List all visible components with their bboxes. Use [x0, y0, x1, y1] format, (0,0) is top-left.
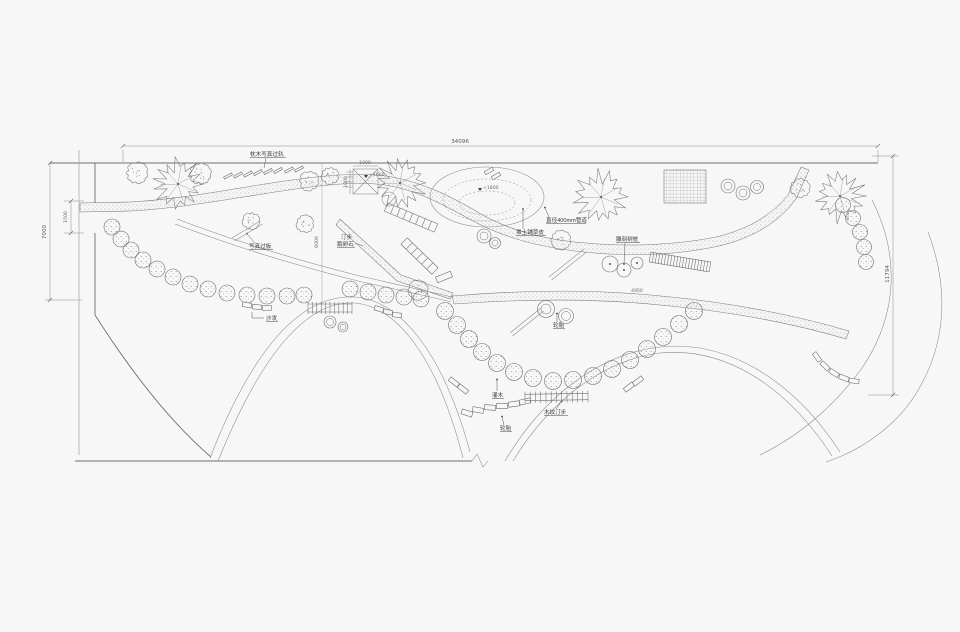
ladder-structure — [525, 391, 588, 403]
plank-symbol — [812, 352, 821, 363]
carved-stump-symbols — [602, 256, 643, 277]
boulder-symbol — [360, 284, 376, 300]
plank-symbol — [632, 376, 643, 386]
lawn-edge-diagonal-b — [175, 224, 451, 302]
leader-dot — [501, 416, 503, 418]
label-pipe: 直径400mm管道 — [546, 216, 587, 224]
tire-symbol — [736, 186, 750, 200]
plank-symbol — [254, 169, 263, 175]
plank-symbol — [252, 304, 261, 309]
break-mark — [472, 454, 488, 467]
boulder-symbol — [449, 317, 466, 334]
plank-symbol — [392, 312, 401, 317]
site-plan-canvas: +1800 1000 1000 +1660 34096 7000 1500 8 — [0, 0, 960, 632]
label-stepping-1: 汀步 — [341, 234, 353, 241]
boulder-symbol — [639, 341, 656, 358]
label-tires-lower: 轮胎 — [500, 424, 512, 432]
landscape-plan-sheet: +1800 1000 1000 +1660 34096 7000 1500 8 — [0, 0, 960, 632]
ladder-structure — [649, 252, 711, 272]
dim-left-opening: 1500 — [63, 211, 69, 223]
leader-dot — [561, 401, 563, 403]
lawn-arc-left-a — [210, 297, 470, 458]
leader-dot — [522, 208, 524, 210]
boulder-symbol — [396, 289, 412, 305]
plank-symbol — [849, 378, 860, 384]
leader-dot — [496, 379, 498, 381]
label-carved-stumps: 雕刻树桩 — [616, 235, 639, 243]
note-tires-upper: 轮胎 — [553, 313, 565, 329]
leader-dot — [623, 263, 625, 265]
boulder-symbol — [200, 281, 216, 297]
lawn-arc-right-a — [505, 346, 840, 461]
boulder-symbol — [525, 370, 542, 387]
boulder-symbol — [279, 288, 295, 304]
boulder-symbol — [545, 373, 562, 390]
boulder-symbol — [342, 281, 358, 297]
ladder-structure — [401, 238, 438, 274]
plank-symbol — [472, 407, 484, 414]
plank-symbol — [491, 172, 501, 180]
leader-line — [247, 234, 255, 243]
mound-spot-level: +1800 — [483, 185, 499, 191]
leader-line — [502, 417, 504, 425]
label-photo-board: 写真过板 — [249, 242, 272, 250]
plank-symbol — [264, 168, 273, 174]
leader-line — [545, 208, 549, 217]
stump-symbol — [617, 263, 631, 277]
plank-symbol — [461, 409, 473, 417]
note-wood-steps: 木纹汀步 — [544, 401, 568, 416]
boulder-symbol — [239, 287, 255, 303]
boulder-symbol — [182, 276, 198, 292]
plank-symbol — [829, 368, 840, 377]
tree-symbol — [573, 168, 628, 220]
boulder-symbol — [378, 287, 394, 303]
mound-contour-2 — [459, 191, 515, 215]
label-wood-steps: 木纹汀步 — [544, 408, 567, 416]
plank-symbol — [244, 171, 253, 177]
shrub-symbol — [296, 215, 314, 233]
tire-symbol — [751, 181, 764, 194]
tire-symbol — [477, 229, 491, 243]
label-earth-mound: 堆土铺草皮 — [516, 228, 544, 236]
boulder-symbol — [859, 255, 874, 270]
label-sand-seat: 沙发 — [266, 314, 278, 322]
slide-board-lines-2 — [510, 308, 544, 336]
dim-left-height: 7000 — [42, 224, 48, 239]
plank-symbol — [457, 384, 468, 394]
label-tires-upper: 轮胎 — [553, 321, 565, 329]
boulder-symbol — [853, 225, 868, 240]
boulder-symbol — [836, 198, 851, 213]
boulder-symbol — [655, 329, 672, 346]
note-earth-mound: 堆土铺草皮 — [516, 208, 546, 236]
boulder-symbol — [585, 368, 602, 385]
boulder-symbol — [219, 285, 235, 301]
note-photo-board: 写真过板 — [246, 233, 273, 250]
boulder-symbol — [686, 303, 703, 320]
boulder-symbol — [671, 316, 688, 333]
boulder-symbol — [565, 372, 582, 389]
shrub-symbol — [126, 162, 147, 184]
tire-symbol — [559, 309, 574, 324]
tire-symbol — [721, 179, 735, 193]
platform-width-dim: 1000 — [359, 160, 371, 166]
leader-dot — [556, 313, 558, 315]
plank-symbol — [484, 405, 495, 411]
label-shrubs: 灌木 — [492, 391, 504, 399]
plank-symbol — [820, 361, 830, 371]
plank-symbol — [263, 306, 272, 311]
dim-path-segment: 4950 — [631, 288, 643, 294]
plank-symbol — [234, 172, 243, 178]
plank-symbol — [448, 377, 459, 387]
boundary-left-curve — [95, 315, 211, 457]
boulder-symbol — [461, 331, 478, 348]
plank-symbol — [496, 403, 507, 408]
boulder-symbol — [135, 252, 151, 268]
plank-symbol — [224, 173, 233, 179]
plank-symbol — [242, 302, 252, 308]
boulder-symbol — [506, 364, 523, 381]
platform-depth-dim: 1000 — [343, 176, 349, 188]
spot-level-marker — [478, 188, 482, 191]
leader-line — [252, 312, 264, 318]
tire-symbol — [324, 316, 336, 328]
stump-symbol — [631, 257, 643, 269]
boulder-symbol — [259, 288, 275, 304]
climb-net-grid — [664, 170, 706, 203]
plank-symbol — [383, 309, 393, 315]
boulder-symbol — [846, 211, 861, 226]
stump-symbol — [602, 256, 618, 272]
ladder-structure — [308, 302, 352, 314]
dim-site-width: 34096 — [451, 139, 469, 145]
lawn-arc-left-b — [218, 303, 463, 461]
tire-symbol — [338, 322, 348, 332]
photo-board-lines — [232, 221, 263, 241]
plank-symbol — [484, 167, 494, 175]
boulder-symbol — [165, 269, 181, 285]
dim-center-depth: 8000 — [314, 236, 320, 248]
plank-symbol — [435, 271, 452, 283]
plank-symbol — [285, 167, 294, 173]
boulder-symbol — [604, 361, 621, 378]
note-shrubs: 灌木 — [492, 379, 504, 399]
plank-symbol — [839, 374, 850, 382]
dim-right-height: 11794 — [885, 265, 891, 283]
plank-symbol — [374, 305, 384, 312]
leader-dot — [544, 207, 546, 209]
slide-board-lines — [549, 249, 587, 280]
boulder-symbol — [489, 355, 506, 372]
boulder-symbol — [149, 261, 165, 277]
note-tires-lower: 轮胎 — [500, 416, 512, 432]
lawn-arc-right-b — [513, 352, 832, 461]
boulder-symbol — [437, 303, 454, 320]
shrub-symbol — [242, 213, 260, 230]
note-top-walkway: 枕木写真过轨 — [250, 150, 286, 168]
boulder-symbol — [413, 291, 429, 307]
tire-symbol — [490, 238, 501, 249]
plank-symbol — [274, 167, 283, 173]
ladder-structure — [384, 203, 437, 232]
plank-symbol — [295, 166, 304, 172]
platform-spot-level: +1660 — [369, 172, 385, 178]
boundary-right-curve-2 — [826, 232, 942, 462]
boulder-symbol — [474, 344, 491, 361]
boulder-symbol — [622, 352, 639, 369]
note-sand-seat: 沙发 — [252, 312, 278, 322]
note-pipe: 直径400mm管道 — [544, 207, 587, 224]
label-stepping-2: 鹅卵石 — [337, 240, 354, 248]
boulder-symbol — [296, 287, 312, 303]
boulder-symbol — [857, 240, 872, 255]
bush-tree-symbols — [126, 162, 810, 301]
plank-symbol — [508, 401, 520, 407]
label-top-walkway: 枕木写真过轨 — [250, 150, 284, 158]
